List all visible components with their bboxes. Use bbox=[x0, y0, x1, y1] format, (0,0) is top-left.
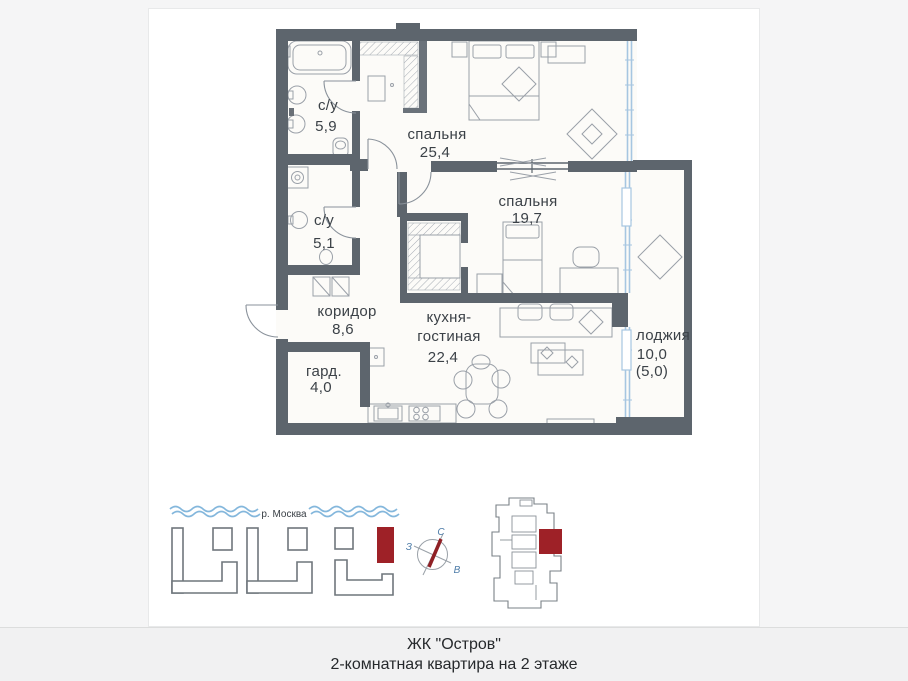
room-area-corridor: 8,6 bbox=[332, 321, 354, 338]
room-label-bathroom1: с/у bbox=[318, 97, 338, 114]
room-area-bathroom2: 5,1 bbox=[313, 235, 335, 252]
compass-east-label: В bbox=[454, 565, 461, 576]
building-key-plan bbox=[492, 498, 562, 608]
floor-plan-drawing: с/у 5,9 спальня 25,4 спальня 19,7 с/у 5,… bbox=[149, 9, 759, 626]
room-label-loggia: лоджия bbox=[636, 327, 690, 344]
compass: С З В bbox=[406, 527, 461, 576]
compass-west-label: З bbox=[406, 542, 412, 553]
compass-needle bbox=[429, 539, 441, 567]
room-area-loggia: 10,0 bbox=[637, 346, 667, 363]
room-label-wardrobe: гард. bbox=[306, 363, 342, 380]
highlighted-building bbox=[377, 527, 394, 563]
room-label-kitchen-1: кухня- bbox=[427, 309, 472, 326]
room-area-kitchen: 22,4 bbox=[428, 349, 458, 366]
room-label-bedroom2: спальня bbox=[498, 193, 557, 210]
room-label-bedroom1: спальня bbox=[407, 126, 466, 143]
key-plan-highlighted-unit bbox=[539, 529, 562, 554]
room-label-kitchen-2: гостиная bbox=[417, 328, 480, 345]
caption-complex-name: ЖК "Остров" bbox=[407, 636, 501, 654]
caption-apartment-info: 2-комнатная квартира на 2 этаже bbox=[330, 656, 577, 674]
room-area-bedroom2: 19,7 bbox=[512, 210, 542, 227]
floor-plan-card: с/у 5,9 спальня 25,4 спальня 19,7 с/у 5,… bbox=[148, 8, 760, 627]
room-label-corridor: коридор bbox=[317, 303, 376, 320]
room-area2-loggia: (5,0) bbox=[636, 363, 668, 380]
room-area-wardrobe: 4,0 bbox=[310, 379, 332, 396]
room-label-bathroom2: с/у bbox=[314, 212, 334, 229]
compass-north-label: С bbox=[437, 527, 445, 538]
site-plan: р. Москва bbox=[170, 507, 399, 596]
site-buildings bbox=[172, 527, 394, 595]
caption: ЖК "Остров" 2-комнатная квартира на 2 эт… bbox=[0, 627, 908, 681]
river-label: р. Москва bbox=[261, 509, 307, 520]
room-area-bedroom1: 25,4 bbox=[420, 144, 450, 161]
room-area-bathroom1: 5,9 bbox=[315, 118, 337, 135]
